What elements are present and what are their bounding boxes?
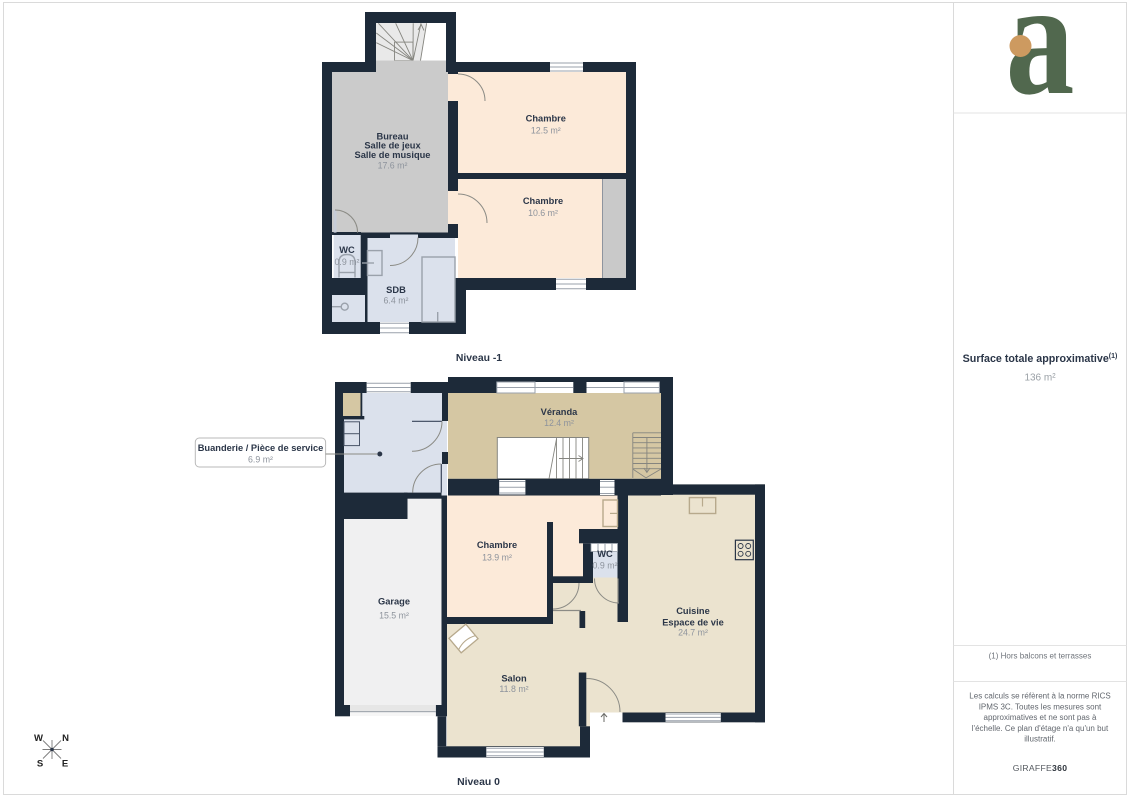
svg-text:WC: WC xyxy=(339,245,355,255)
svg-text:24.7 m²: 24.7 m² xyxy=(678,627,708,637)
svg-text:Salon: Salon xyxy=(501,673,527,683)
svg-text:15.5 m²: 15.5 m² xyxy=(379,611,409,621)
svg-text:11.8 m²: 11.8 m² xyxy=(499,684,528,694)
svg-text:Chambre: Chambre xyxy=(526,114,566,124)
svg-text:Chambre: Chambre xyxy=(477,540,517,550)
svg-text:0.9 m²: 0.9 m² xyxy=(593,561,618,571)
svg-text:Salle de musique: Salle de musique xyxy=(355,150,431,160)
svg-text:6.4 m²: 6.4 m² xyxy=(384,295,409,305)
svg-text:a: a xyxy=(1006,0,1075,129)
svg-text:Chambre: Chambre xyxy=(523,196,563,206)
svg-text:E: E xyxy=(62,759,68,770)
svg-text:136 m²: 136 m² xyxy=(1024,373,1056,384)
svg-text:W: W xyxy=(34,733,43,744)
svg-text:SDB: SDB xyxy=(386,285,406,295)
svg-text:approximatives et ne sont pas: approximatives et ne sont pas à xyxy=(984,713,1098,722)
svg-text:Surface totale approximative(1: Surface totale approximative(1) xyxy=(963,353,1118,365)
svg-text:Garage: Garage xyxy=(378,597,410,607)
svg-text:Cuisine: Cuisine xyxy=(676,606,710,616)
svg-text:WC: WC xyxy=(597,549,613,559)
svg-text:Niveau -1: Niveau -1 xyxy=(456,353,502,364)
svg-text:17.6 m²: 17.6 m² xyxy=(378,161,408,171)
svg-text:S: S xyxy=(37,759,43,770)
svg-text:Buanderie / Pièce de service: Buanderie / Pièce de service xyxy=(198,443,324,453)
svg-text:N: N xyxy=(62,733,69,744)
svg-text:12.5 m²: 12.5 m² xyxy=(531,126,561,136)
svg-text:l'échelle. Ce plan d'étage n'a: l'échelle. Ce plan d'étage n'a qu'un but xyxy=(972,724,1109,733)
svg-text:10.6 m²: 10.6 m² xyxy=(528,208,558,218)
svg-text:Les calculs se réfèrent à la n: Les calculs se réfèrent à la norme RICS xyxy=(969,692,1110,701)
svg-text:13.9 m²: 13.9 m² xyxy=(482,552,512,562)
svg-text:IPMS 3C. Toutes les mesures so: IPMS 3C. Toutes les mesures sont xyxy=(979,702,1102,711)
svg-text:illustratif.: illustratif. xyxy=(1024,735,1056,744)
svg-text:Véranda: Véranda xyxy=(541,407,579,417)
svg-text:Niveau 0: Niveau 0 xyxy=(457,777,500,788)
svg-text:(1) Hors balcons et terrasses: (1) Hors balcons et terrasses xyxy=(989,652,1092,661)
svg-text:0.9 m²: 0.9 m² xyxy=(335,257,360,267)
svg-text:12.4 m²: 12.4 m² xyxy=(544,418,574,428)
svg-text:6.9 m²: 6.9 m² xyxy=(248,454,273,464)
svg-text:GIRAFFE360: GIRAFFE360 xyxy=(1013,763,1068,773)
svg-text:Espace de vie: Espace de vie xyxy=(662,617,724,627)
